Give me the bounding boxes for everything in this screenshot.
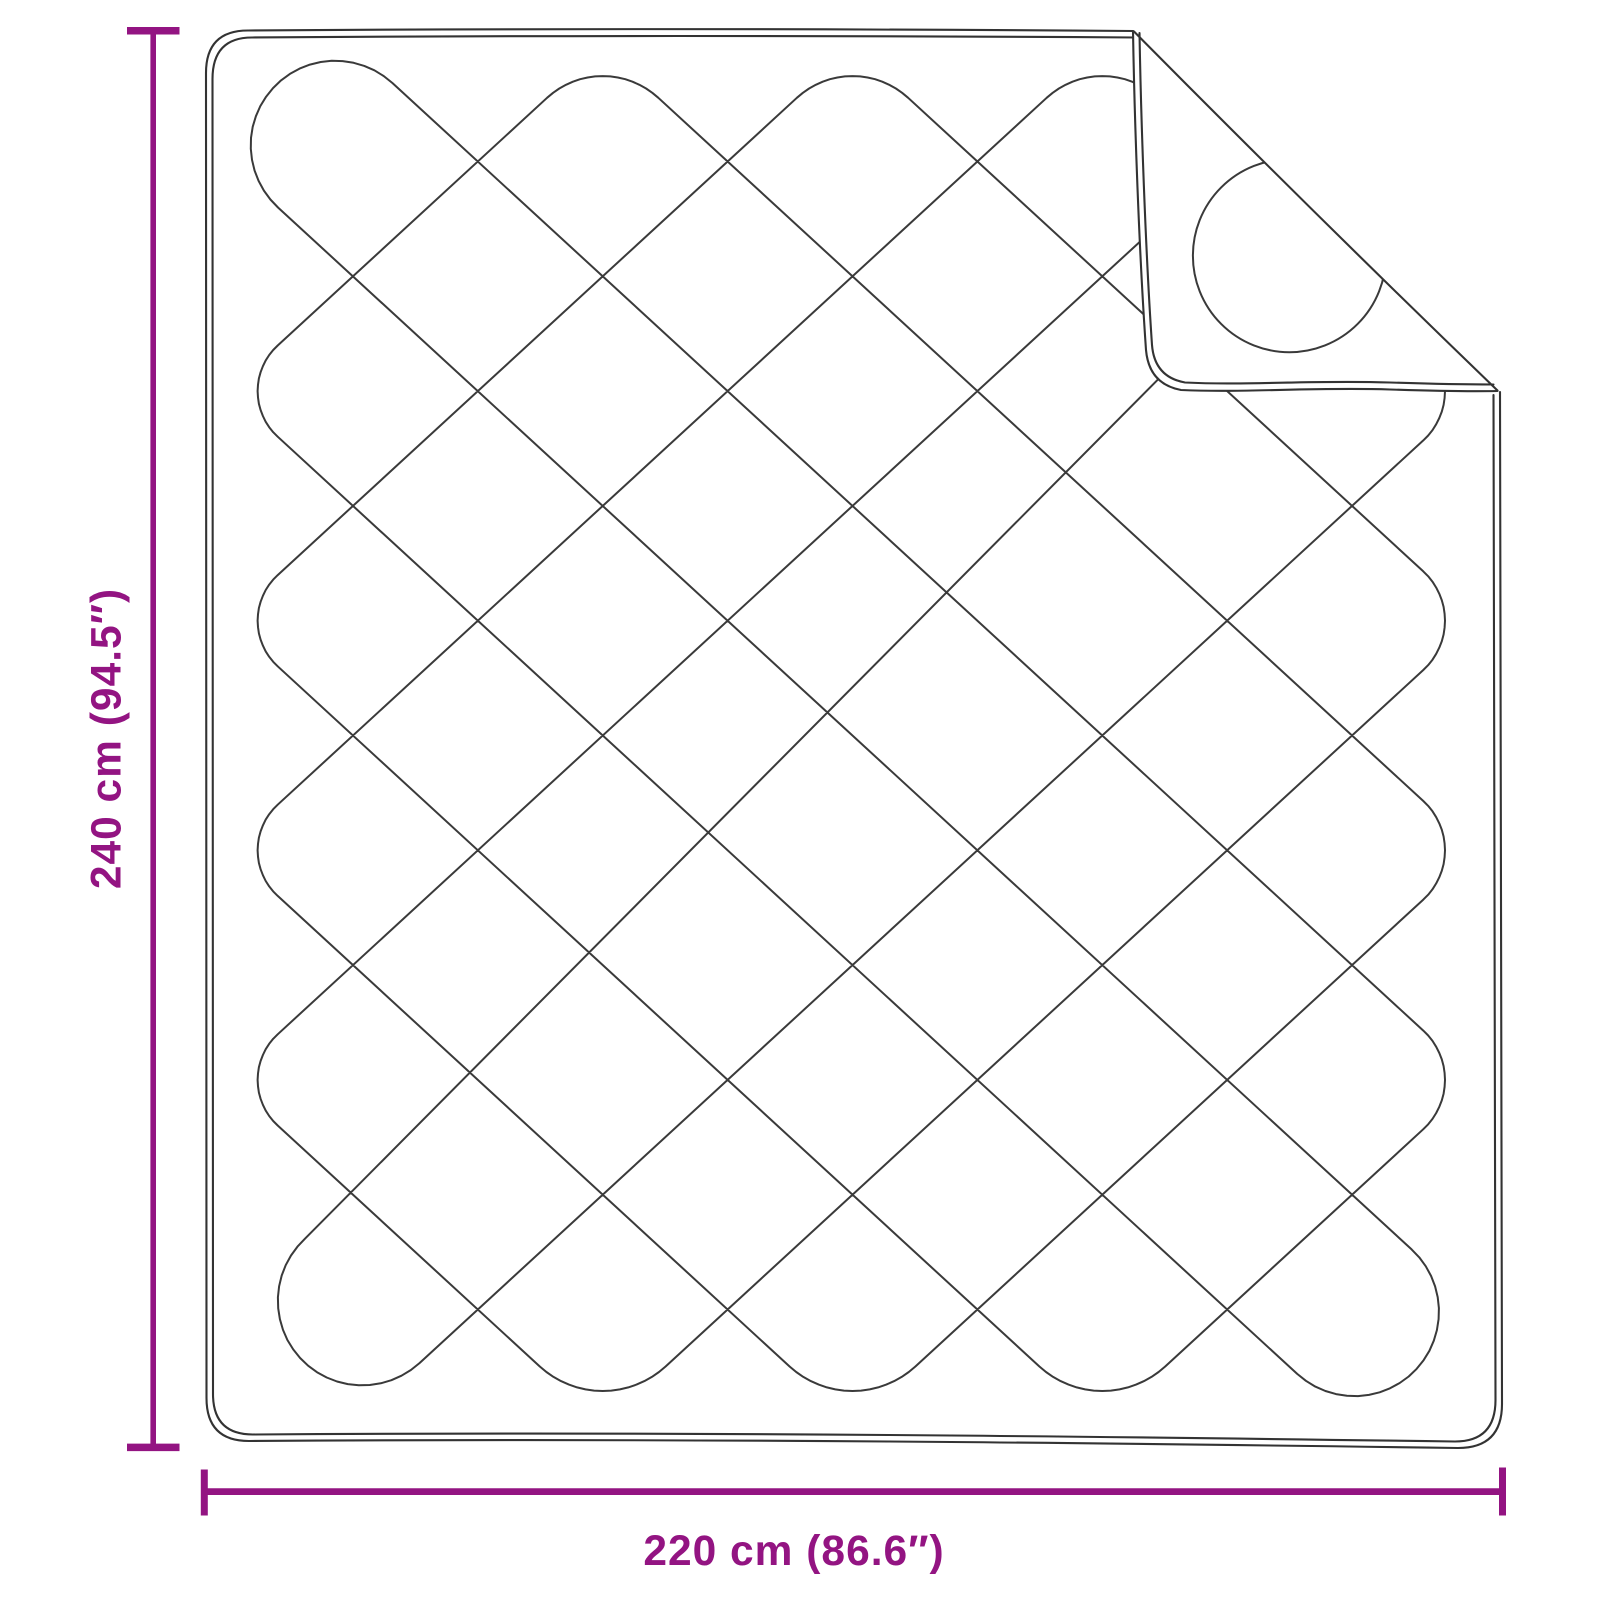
svg-text:220 cm (86.6″): 220 cm (86.6″) (643, 1528, 944, 1575)
svg-text:240 cm (94.5″): 240 cm (94.5″) (84, 588, 131, 889)
